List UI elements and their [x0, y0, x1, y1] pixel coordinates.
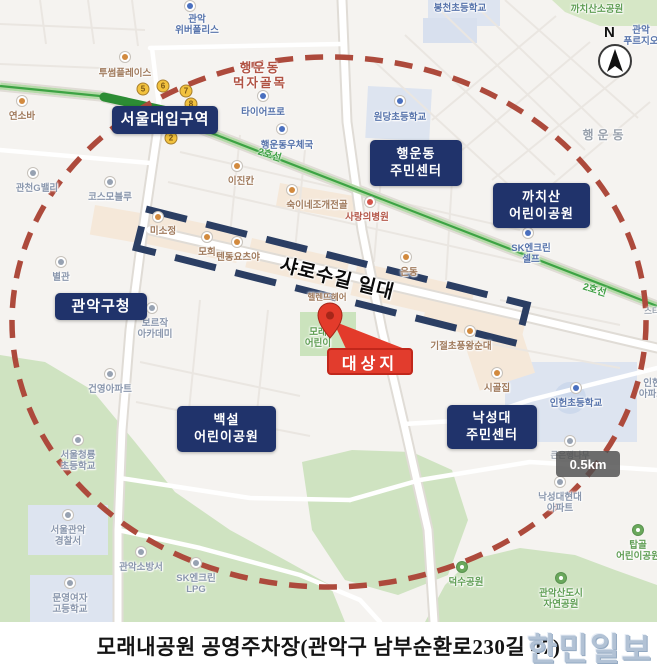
poi-label-cosmoblue: 코스모블루	[88, 192, 132, 203]
poi-label-weber-line2: 위버폴리스	[175, 25, 219, 36]
purgio-line1: 관악	[624, 25, 657, 36]
building-icon	[55, 256, 67, 268]
marker-gu-office-text: 관악구청	[71, 297, 130, 317]
topgol-line1: 탑골	[616, 540, 657, 551]
news-map-image: 5 6 7 8 2 투썸플레이스 연소바 타이어프로 행운동우체국 이진칸 원당…	[0, 0, 657, 670]
poi-label-byeolgwan: 별관	[52, 272, 69, 283]
fire-station-icon	[135, 546, 147, 558]
restaurant-icon	[16, 95, 28, 107]
poi-label-eundong: 은동	[400, 267, 417, 278]
munyoung-line1: 문영여자	[53, 593, 88, 604]
apartment-icon	[554, 476, 566, 488]
sk-lpg-line2: LPG	[176, 584, 215, 595]
marker-kkachisan-line1: 까치산	[522, 189, 561, 206]
cafe-icon	[119, 51, 131, 63]
boreujak-line2: 아카데미	[138, 329, 173, 340]
marker-nakseongdae-line1: 낙성대	[473, 410, 512, 427]
inheon-apt-line2: 아파트	[639, 389, 657, 400]
park-icon	[456, 561, 468, 573]
shop-icon	[257, 90, 269, 102]
poi-label-deoksu-park: 덕수공원	[449, 577, 484, 588]
target-site-label: 대상지	[342, 350, 398, 374]
map-scale: 0.5km	[556, 451, 620, 477]
school-icon	[394, 95, 406, 107]
meokja-line2: 먹자골목	[233, 76, 287, 91]
poi-label-gijeol: 기절초풍왕순대	[430, 341, 491, 352]
marker-snu-station-text: 서울대입구역	[121, 110, 210, 130]
poi-label-sk-self: SK엔크린 셀프	[511, 243, 550, 265]
gwanaksan-line1: 관악산도시	[539, 588, 583, 599]
school-icon	[64, 577, 76, 589]
area-label-meokja-golmok: 행운동 먹자골목	[233, 61, 287, 91]
marker-haengundong-center: 행운동 주민센터	[370, 140, 462, 186]
meokja-line1: 행운동	[233, 61, 287, 76]
poi-label-boreujak: 보르작 아카데미	[138, 318, 173, 340]
gas-station-icon	[190, 557, 202, 569]
marker-snu-station: 서울대입구역	[112, 106, 218, 134]
poi-label-tirepro: 타이어프로	[241, 107, 285, 118]
poi-label-yeonsoba: 연소바	[9, 111, 35, 122]
nak-apt-line1: 낙성대현대	[538, 492, 582, 503]
poi-label-kkachisan-small-park: 까치산소공원	[571, 4, 623, 15]
compass-n-label: N	[604, 24, 615, 41]
marker-haengundong-line2: 주민센터	[390, 163, 442, 180]
building-icon	[184, 0, 196, 12]
poi-label-wondang-school: 원당초등학교	[374, 112, 426, 123]
restaurant-icon	[464, 325, 476, 337]
poi-label-sugine: 숙이네조개전골	[286, 200, 347, 211]
restaurant-icon	[286, 184, 298, 196]
building-icon	[27, 167, 39, 179]
marker-haengundong-line1: 행운동	[397, 146, 436, 163]
subway-exit-badge: 7	[180, 85, 193, 98]
map-scale-label: 0.5km	[570, 457, 607, 472]
poi-label-gwanaksan-park: 관악산도시 자연공원	[539, 588, 583, 610]
press-watermark: 한민일보	[527, 624, 653, 670]
topgol-line2: 어린이공원	[616, 551, 657, 562]
munyoung-line2: 고등학교	[53, 604, 88, 615]
restaurant-icon	[201, 231, 213, 243]
poi-label-mohee: 모희	[198, 247, 215, 258]
police-line1: 서울관악	[51, 525, 86, 536]
marker-kkachisan-park: 까치산 어린이공원	[493, 183, 590, 228]
poi-label-misojeong: 미소정	[150, 226, 176, 237]
marker-baekseol-line1: 백설	[214, 412, 240, 429]
sk-self-line1: SK엔크린	[511, 243, 550, 254]
poi-label-nakseongdae-apt: 낙성대현대 아파트	[538, 492, 582, 514]
target-site-badge: 대상지	[327, 348, 413, 375]
inheon-apt-line1: 인헌	[639, 378, 657, 389]
poi-label-fire-station: 관악소방서	[119, 562, 163, 573]
poi-label-gwancheon: 관천G밸리	[16, 183, 58, 194]
restaurant-icon	[491, 367, 503, 379]
north-arrow-icon	[600, 46, 630, 76]
poi-label-ijinkan: 이진칸	[228, 176, 254, 187]
marker-nakseongdae-line2: 주민센터	[466, 427, 518, 444]
poi-label-tendon: 텐동요츠야	[216, 252, 260, 263]
poi-label-inheon-apt: 인헌 아파트	[639, 378, 657, 400]
police-line2: 경찰서	[51, 536, 86, 547]
poi-label-weber: 관악 위버폴리스	[175, 14, 219, 36]
restaurant-icon	[400, 251, 412, 263]
poi-label-topgol-park: 탑골 어린이공원	[616, 540, 657, 562]
cheongryong-line2: 초등학교	[61, 461, 96, 472]
subway-line2-label: 2호선	[581, 278, 608, 299]
area-label-haengundong: 행운동	[582, 128, 627, 142]
poi-label-twosome: 투썸플레이스	[99, 68, 151, 79]
poi-label-sigoljip: 시골집	[484, 383, 510, 394]
post-office-icon	[276, 123, 288, 135]
compass-icon	[598, 44, 632, 78]
marker-baekseol-line2: 어린이공원	[194, 429, 259, 446]
restaurant-icon	[231, 236, 243, 248]
poi-label-sarang-hospital: 사랑의병원	[345, 212, 389, 223]
subway-exit-badge: 5	[137, 83, 150, 96]
sk-lpg-line1: SK엔크린	[176, 573, 215, 584]
poi-label-inheon-school: 인헌초등학교	[550, 398, 602, 409]
marker-kkachisan-line2: 어린이공원	[509, 206, 574, 223]
poi-label-munyoung-school: 문영여자 고등학교	[53, 593, 88, 615]
poi-label-weber-line1: 관악	[175, 14, 219, 25]
poi-label-sk-lpg: SK엔크린 LPG	[176, 573, 215, 595]
park-icon	[555, 572, 567, 584]
building-icon	[104, 176, 116, 188]
poi-label-purgio: 관악 푸르지오	[624, 25, 657, 47]
restaurant-icon	[231, 160, 243, 172]
academy-icon	[146, 302, 158, 314]
gas-station-icon	[522, 227, 534, 239]
poi-label-bongcheon-school: 봉천초등학교	[434, 3, 486, 14]
marker-nakseongdae-center: 낙성대 주민센터	[447, 405, 537, 449]
poi-label-sta-partial: 스타	[644, 306, 657, 316]
nak-apt-line2: 아파트	[538, 503, 582, 514]
hospital-icon	[364, 196, 376, 208]
cheongryong-line1: 서울청룡	[61, 450, 96, 461]
poi-label-cheongryong-school: 서울청룡 초등학교	[61, 450, 96, 472]
gwanaksan-line2: 자연공원	[539, 599, 583, 610]
marker-baekseol-park: 백설 어린이공원	[177, 406, 276, 452]
school-icon	[72, 434, 84, 446]
tree-icon	[564, 435, 576, 447]
poi-label-gunyoung-apt: 건영아파트	[88, 384, 132, 395]
marker-gwanak-gu-office: 관악구청	[55, 293, 147, 320]
restaurant-icon	[152, 211, 164, 223]
caption-bar: 모래내공원 공영주차장(관악구 남부순환로230길 47) 한민일보	[0, 622, 657, 670]
apartment-icon	[104, 368, 116, 380]
subway-exit-badge: 6	[157, 80, 170, 93]
school-icon	[570, 382, 582, 394]
park-icon	[632, 524, 644, 536]
police-icon	[62, 509, 74, 521]
sk-self-line2: 셀프	[511, 254, 550, 265]
poi-label-police: 서울관악 경찰서	[51, 525, 86, 547]
map-canvas: 5 6 7 8 2 투썸플레이스 연소바 타이어프로 행운동우체국 이진칸 원당…	[0, 0, 657, 623]
